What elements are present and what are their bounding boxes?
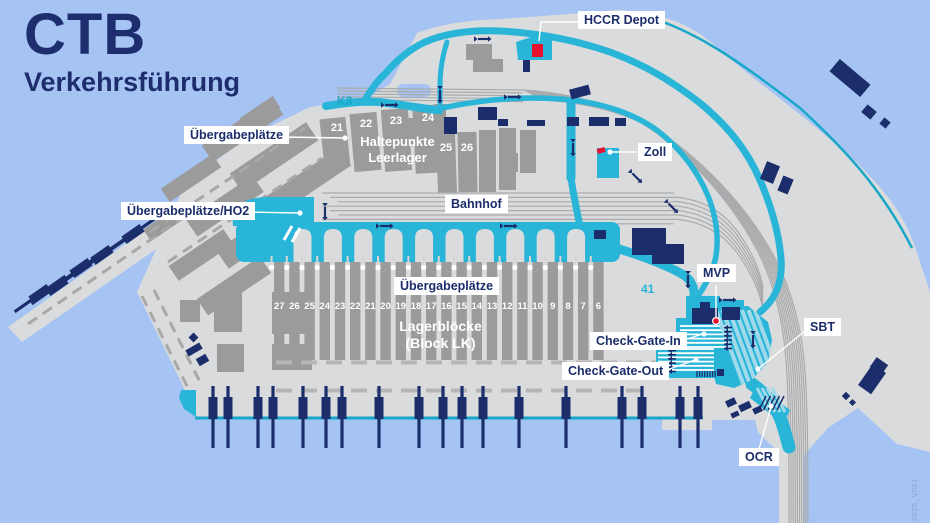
terminal-map: 212223242526 27262524232221 (0, 0, 930, 523)
transfer-point-dot (558, 265, 563, 270)
building (879, 117, 890, 128)
yard-block (214, 290, 242, 332)
storage-block-number: 15 (456, 301, 467, 312)
yard-block (217, 344, 244, 372)
storage-block-number: 18 (411, 301, 422, 312)
transfer-point-dot (482, 265, 487, 270)
storage-block-number: 26 (289, 301, 300, 312)
storage-block-number: 6 (596, 301, 601, 312)
subtitle: Verkehrsführung (24, 68, 240, 98)
transfer-point-dot (527, 265, 532, 270)
building (527, 120, 545, 126)
building (478, 107, 497, 120)
storage-block-number: 17 (426, 301, 437, 312)
haltepunkte-block (499, 128, 516, 190)
mvp-red-dot (713, 318, 720, 325)
storage-block-number: 27 (274, 301, 285, 312)
building (567, 117, 579, 126)
transfer-point-dot (406, 265, 411, 270)
storage-block-number: 9 (550, 301, 555, 312)
building (830, 59, 871, 97)
transfer-point-dot (299, 265, 304, 270)
label-zoll[interactable]: Zoll (638, 143, 672, 161)
haltepunkte-block (479, 130, 496, 192)
building (722, 307, 740, 320)
storage-block-number: 10 (532, 301, 543, 312)
label-lagerbloecke: Lagerblöcke (Block LK) (383, 318, 498, 352)
transfer-point-dot (451, 265, 456, 270)
storage-block-number: 24 (320, 301, 331, 312)
transfer-point-dot (345, 265, 350, 270)
storage-block-number: 11 (517, 301, 528, 312)
building (861, 104, 877, 119)
quay-road-end (179, 390, 196, 417)
yard-block (180, 300, 200, 322)
label-area-41: 41 (641, 282, 654, 296)
label-hccr-depot[interactable]: HCCR Depot (578, 11, 665, 29)
haltepunkte-number: 21 (331, 122, 343, 134)
label-haltepunkte-leerlager: Haltepunkte Leerlager (335, 134, 460, 165)
building (643, 230, 652, 239)
label-check-gate-out[interactable]: Check-Gate-Out (562, 362, 669, 380)
building (498, 119, 508, 126)
building (652, 244, 684, 264)
storage-block-number: 20 (380, 301, 391, 312)
label-uebergabeplaetze-ho2[interactable]: Übergabeplätze/HO2 (121, 202, 255, 220)
transfer-point-dot (573, 265, 578, 270)
haltepunkte-number: 22 (360, 118, 372, 130)
storage-block-number: 21 (365, 301, 376, 312)
building (594, 230, 606, 239)
hccr-depot-marker (532, 44, 543, 57)
title: CTB (24, 6, 240, 64)
building (589, 117, 609, 126)
transfer-point-dot (497, 265, 502, 270)
label-uebergabeplaetze-left[interactable]: Übergabeplätze (184, 126, 289, 144)
building (717, 369, 724, 376)
building (523, 60, 530, 72)
building (444, 117, 457, 134)
label-bahnhof[interactable]: Bahnhof (445, 195, 508, 213)
haltepunkte-number: 24 (422, 112, 435, 124)
label-k3: K3 (337, 94, 352, 108)
storage-block-number: 12 (502, 301, 513, 312)
transfer-point-dot (284, 265, 289, 270)
transfer-point-dot (391, 265, 396, 270)
yard-block (520, 130, 536, 173)
storage-block-number: 14 (472, 301, 483, 312)
haltepunkte-block (457, 132, 477, 192)
transfer-point-dot (315, 265, 320, 270)
storage-block-number: 23 (335, 301, 346, 312)
version-watermark: 2025_V001 (910, 443, 919, 521)
storage-block-number: 19 (396, 301, 407, 312)
transfer-point-dot (269, 265, 274, 270)
haltepunkte-number: 26 (461, 142, 473, 154)
building (700, 302, 710, 309)
storage-block-number: 7 (581, 301, 586, 312)
label-check-gate-in[interactable]: Check-Gate-In (590, 332, 687, 350)
transfer-point-dot (436, 265, 441, 270)
building (615, 118, 626, 126)
label-sbt[interactable]: SBT (804, 318, 841, 336)
storage-block-number: 16 (441, 301, 452, 312)
transfer-point-dot (375, 265, 380, 270)
storage-block-number: 25 (304, 301, 315, 312)
transfer-point-dot (588, 265, 593, 270)
transfer-point-dot (543, 265, 548, 270)
map-title-block: CTB Verkehrsführung (24, 6, 240, 98)
transfer-point-dot (330, 265, 335, 270)
label-mvp[interactable]: MVP (697, 264, 736, 282)
storage-block-number: 22 (350, 301, 361, 312)
yard-block (473, 59, 503, 72)
transfer-point-dot (467, 265, 472, 270)
transfer-point-dot (512, 265, 517, 270)
haltepunkte-number: 23 (390, 115, 402, 127)
transfer-point-dot (421, 265, 426, 270)
label-uebergabeplaetze-center[interactable]: Übergabeplätze (394, 277, 499, 295)
storage-block-number: 13 (487, 301, 498, 312)
label-ocr[interactable]: OCR (739, 448, 779, 466)
storage-block-number: 8 (565, 301, 570, 312)
transfer-point-dot (360, 265, 365, 270)
yard-block (466, 44, 492, 60)
